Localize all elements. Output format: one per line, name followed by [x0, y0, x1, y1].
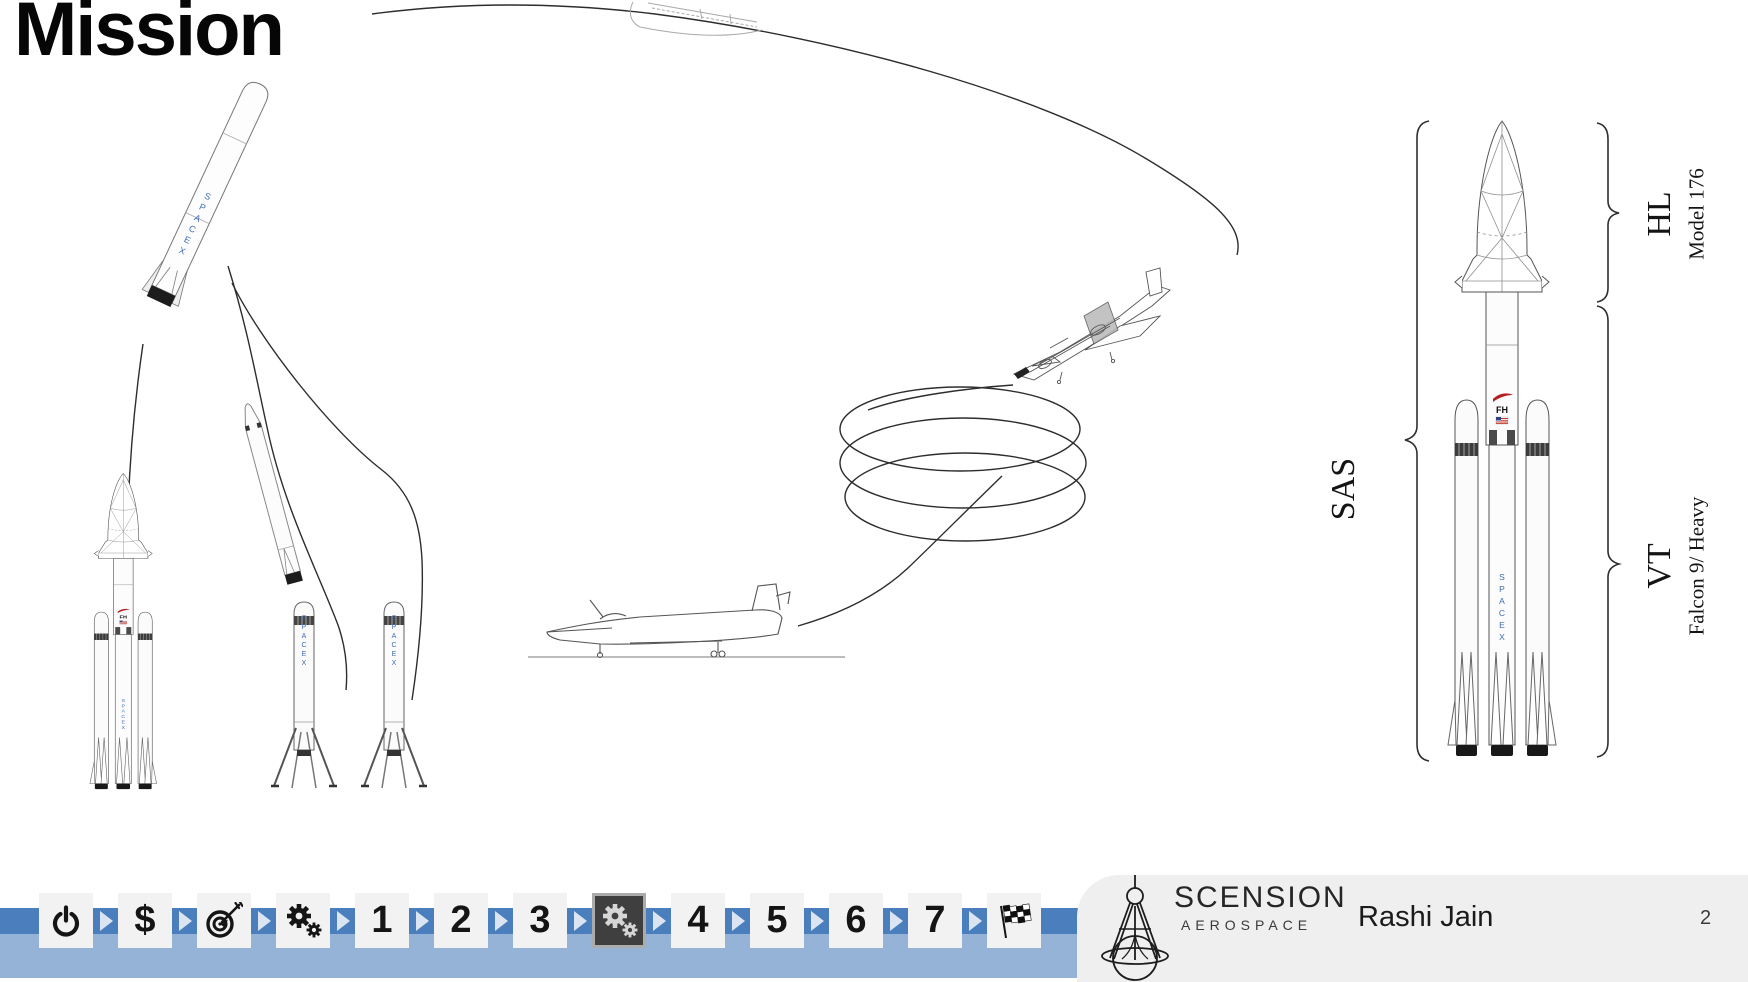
- nav-separator-arrow: [495, 911, 508, 931]
- falcon-heavy-stack-left: [90, 473, 157, 789]
- sas-bracket: [1405, 121, 1429, 761]
- landed-booster-2: [361, 602, 427, 788]
- nav-separator-arrow: [574, 911, 587, 931]
- nav-separator-arrow: [258, 911, 271, 931]
- mission-slide: Mission: [0, 0, 1748, 982]
- nav-gears-current[interactable]: [592, 893, 646, 948]
- nav-separator-arrow: [653, 911, 666, 931]
- landed-booster-1: [271, 602, 337, 788]
- nav-power[interactable]: [39, 893, 93, 948]
- target-icon: [205, 902, 243, 940]
- sas-stack-diagram: [1405, 121, 1619, 761]
- nav-separator-arrow: [416, 911, 429, 931]
- nav-section-4[interactable]: 4: [671, 893, 725, 948]
- mission-diagram-artwork: FH SPACEX: [0, 0, 1748, 982]
- ascending-rocket: [140, 76, 278, 310]
- nav-section-5[interactable]: 5: [750, 893, 804, 948]
- nav-section-2[interactable]: 2: [434, 893, 488, 948]
- nav-separator-arrow: [100, 911, 113, 931]
- nav-separator-arrow: [732, 911, 745, 931]
- checkered-flag-icon: [994, 902, 1034, 940]
- vt-label: VT: [1643, 543, 1677, 588]
- power-icon: [49, 904, 83, 938]
- nav-separator-arrow: [179, 911, 192, 931]
- nav-separator-arrow: [969, 911, 982, 931]
- nav-section-6[interactable]: 6: [829, 893, 883, 948]
- footer-card: SCENSION AEROSPACE Rashi Jain 2: [1077, 875, 1748, 982]
- aircraft-side-view: [528, 584, 845, 658]
- sas-label: SAS: [1327, 458, 1361, 520]
- page-number: 2: [1700, 907, 1711, 930]
- gears-icon: [598, 901, 640, 941]
- nav-separator-arrow: [811, 911, 824, 931]
- hl-model-label: Model 176: [1687, 168, 1708, 260]
- gears-icon: [282, 901, 324, 941]
- ascension-compass-logo-icon: [1097, 872, 1175, 982]
- nav-gears-setup[interactable]: [276, 893, 330, 948]
- nav-section-1[interactable]: 1: [355, 893, 409, 948]
- nav-dollar[interactable]: $: [118, 893, 172, 948]
- vt-bracket: [1597, 306, 1619, 757]
- hl-bracket: [1597, 123, 1619, 302]
- nav-separator-arrow: [337, 911, 350, 931]
- orbit-spiral: [798, 385, 1086, 626]
- nav-section-7[interactable]: 7: [908, 893, 962, 948]
- brand-subname: AEROSPACE: [1181, 917, 1312, 933]
- nav-target[interactable]: [197, 893, 251, 948]
- nav-section-3[interactable]: 3: [513, 893, 567, 948]
- nav-separator-arrow: [890, 911, 903, 931]
- descending-booster: [240, 402, 303, 585]
- vt-model-label: Falcon 9/ Heavy: [1687, 497, 1708, 636]
- aircraft-top-cropped: [630, 2, 762, 35]
- nav-finish[interactable]: [987, 893, 1041, 948]
- hypersonic-aircraft-cutaway: [1014, 268, 1170, 384]
- brand-name: SCENSION: [1174, 881, 1347, 915]
- author-name: Rashi Jain: [1358, 901, 1493, 934]
- hl-label: HL: [1643, 191, 1677, 236]
